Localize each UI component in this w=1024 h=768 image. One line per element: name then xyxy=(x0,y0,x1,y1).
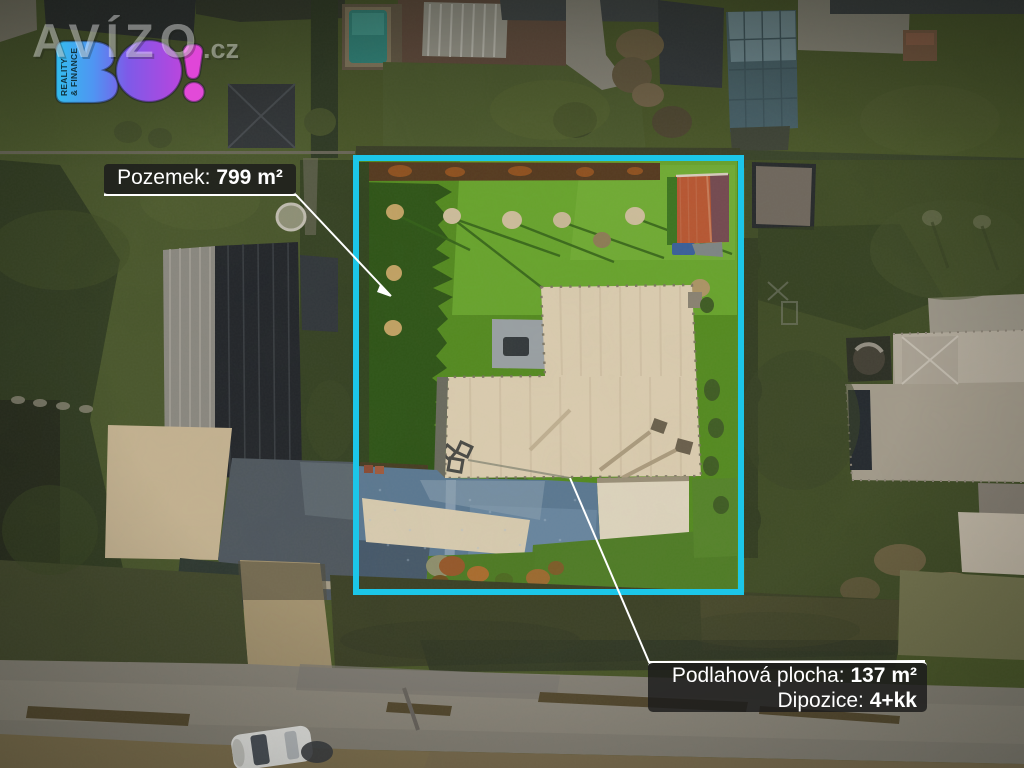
svg-text:.cz: .cz xyxy=(203,34,239,64)
svg-text:AVÍZO: AVÍZO xyxy=(32,14,202,67)
